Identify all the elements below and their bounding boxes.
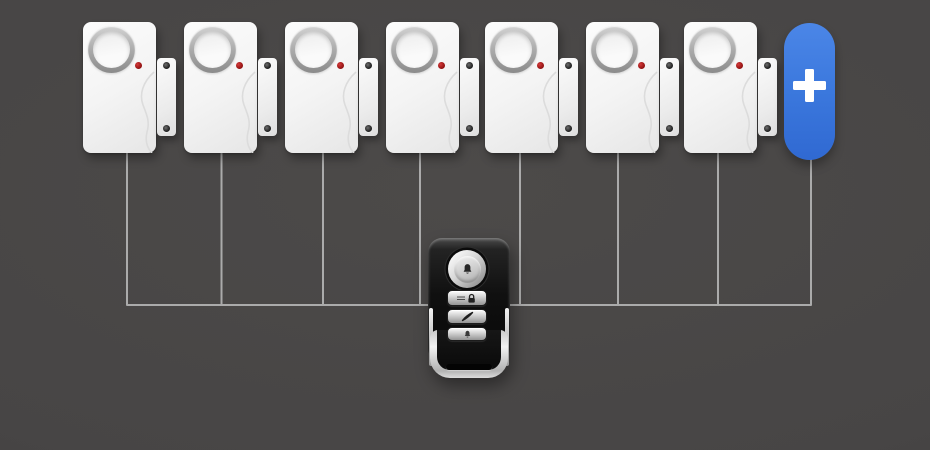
remote-arm-button[interactable] [448,250,486,288]
remote-control [428,238,510,380]
sensor-seam [386,22,459,153]
sensor-body [485,22,558,153]
sensor-seam [684,22,757,153]
plus-icon [805,69,814,102]
remote-lock-button[interactable] [447,290,487,306]
remote-bell-button[interactable] [447,327,487,341]
keyring-slot [446,364,492,370]
sensor-body [83,22,156,153]
screw-icon [565,125,572,132]
sensor-body [586,22,659,153]
screw-icon [466,125,473,132]
screw-icon [466,62,473,69]
remote-panic-button[interactable] [447,309,487,324]
screw-icon [666,62,673,69]
door-sensor [184,22,277,153]
bell-icon [463,330,472,339]
magnet-strip [460,58,479,136]
sensor-body [684,22,757,153]
door-sensor [285,22,378,153]
sensor-seam [586,22,659,153]
big-button-face [454,256,481,283]
sensor-body [285,22,358,153]
magnet-strip [359,58,378,136]
sensor-body [386,22,459,153]
magnet-strip [258,58,277,136]
magnet-strip [660,58,679,136]
magnet-strip [157,58,176,136]
alarm-kit-diagram: + [0,0,930,450]
sensor-seam [285,22,358,153]
door-sensor [684,22,777,153]
screw-icon [764,125,771,132]
screw-icon [264,125,271,132]
screw-icon [565,62,572,69]
door-sensor [485,22,578,153]
sensor-body [184,22,257,153]
screw-icon [764,62,771,69]
sensor-seam [485,22,558,153]
lock-icon [456,293,478,304]
alarm-bell-icon [461,263,474,276]
sensor-seam [184,22,257,153]
sensor-seam [83,22,156,153]
screw-icon [365,125,372,132]
screw-icon [666,125,673,132]
door-sensor [83,22,176,153]
screw-icon [264,62,271,69]
door-sensor [586,22,679,153]
magnet-strip [758,58,777,136]
screw-icon [365,62,372,69]
screw-icon [163,62,170,69]
magnet-strip [559,58,578,136]
lightning-icon [461,311,474,322]
add-sensor-button[interactable]: + [784,23,835,160]
screw-icon [163,125,170,132]
door-sensor [386,22,479,153]
